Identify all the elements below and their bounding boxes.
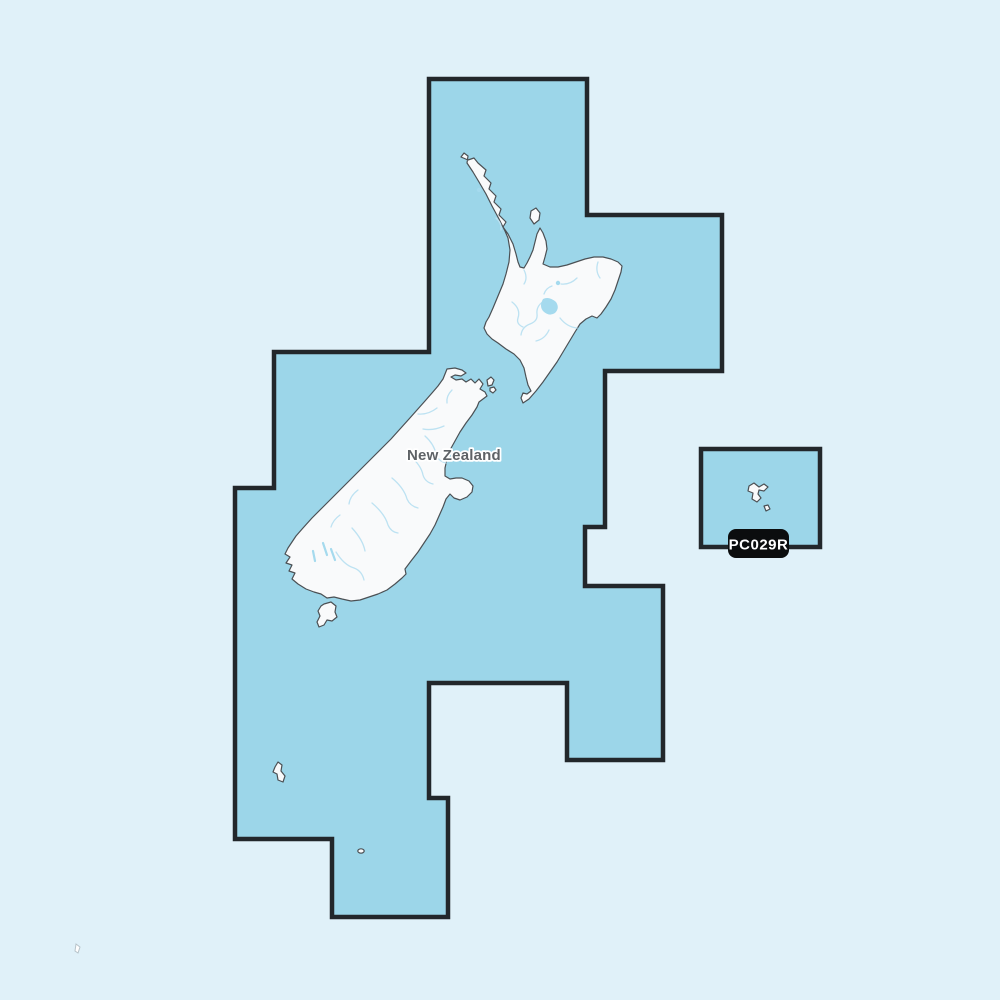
chart-coverage-map: New Zealand PC029R <box>0 0 1000 1000</box>
country-label: New Zealand <box>407 447 501 464</box>
chart-id-badge: PC029R <box>728 529 789 558</box>
lake-small <box>556 281 560 285</box>
campbell-island <box>358 849 364 853</box>
coverage-map-svg: New Zealand PC029R <box>0 0 1000 1000</box>
chart-id-badge-text: PC029R <box>729 537 789 554</box>
lake-northland <box>477 188 481 192</box>
